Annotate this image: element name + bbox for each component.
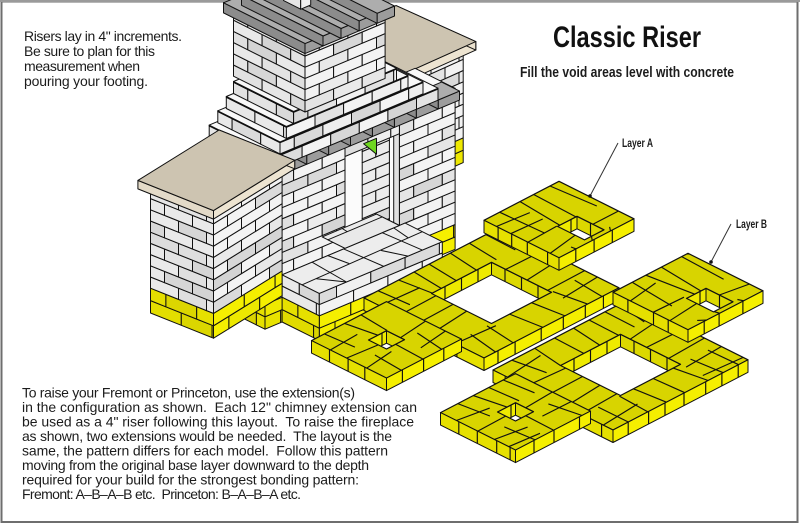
svg-text:Risers lay in 4" increments.: Risers lay in 4" increments. [24, 28, 182, 44]
svg-text:Fill the void areas level with: Fill the void areas level with concrete [520, 65, 734, 81]
svg-text:measurement when: measurement when [24, 58, 140, 74]
svg-text:pouring your footing.: pouring your footing. [24, 73, 148, 89]
svg-text:Be sure to plan for this: Be sure to plan for this [24, 43, 155, 59]
svg-text:Classic Riser: Classic Riser [553, 21, 701, 54]
svg-text:Fremont: A–B–A–B etc. Princet: Fremont: A–B–A–B etc. Princeton: B–A–B–A… [22, 486, 301, 502]
svg-text:Layer A: Layer A [622, 138, 653, 150]
svg-text:Layer B: Layer B [736, 219, 767, 231]
